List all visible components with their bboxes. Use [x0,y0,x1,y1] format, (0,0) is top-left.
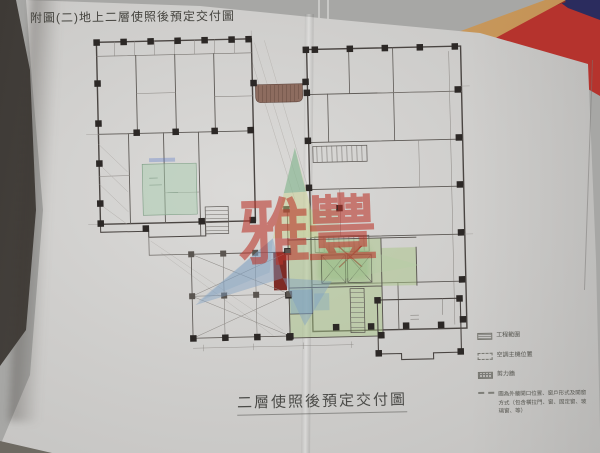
room-label-mark [149,158,175,163]
stair-left [205,210,228,231]
grid-box-symbol [478,372,493,379]
green-room [142,163,197,215]
watermark-char-1: 雅 [237,197,311,271]
dashed-box-symbol [478,352,493,359]
legend-label: 工程範圍 [496,331,520,341]
legend-row: 圖為外牆開口位置、窗戶形式及開窗方式（包含橫拉門、窗、固定窗、玻璃窗、等） [478,389,594,417]
legend-row: 剪力牆 [478,369,594,381]
stair-right-1 [317,145,362,162]
legend-row: 工程範圍 [477,330,593,342]
legend-label: 剪力牆 [497,371,515,381]
dashed-line-symbol [478,392,494,394]
photo-of-floor-plan-document: 雅 豐 附圖(二)地上二層使照後預定交付圖 二層使照後預定交付圖 工程範圍 空調… [0,0,600,453]
legend-note: 圖為外牆開口位置、窗戶形式及開窗方式（包含橫拉門、窗、固定窗、玻璃窗、等） [498,389,590,417]
page-title-bottom: 二層使照後預定交付圖 [237,388,407,416]
watermark-char-2: 豐 [305,193,379,267]
hatched-box-symbol [477,333,492,340]
legend-label: 空調主機位置 [497,351,533,361]
legend-row: 空調主機位置 [478,350,594,362]
canopy [255,84,302,103]
left-wing [96,39,255,238]
legend: 工程範圍 空調主機位置 剪力牆 圖為外牆開口位置、窗戶形式及開窗方式（包含橫拉門… [477,330,595,427]
page-title-top: 附圖(二)地上二層使照後預定交付圖 [30,7,235,26]
